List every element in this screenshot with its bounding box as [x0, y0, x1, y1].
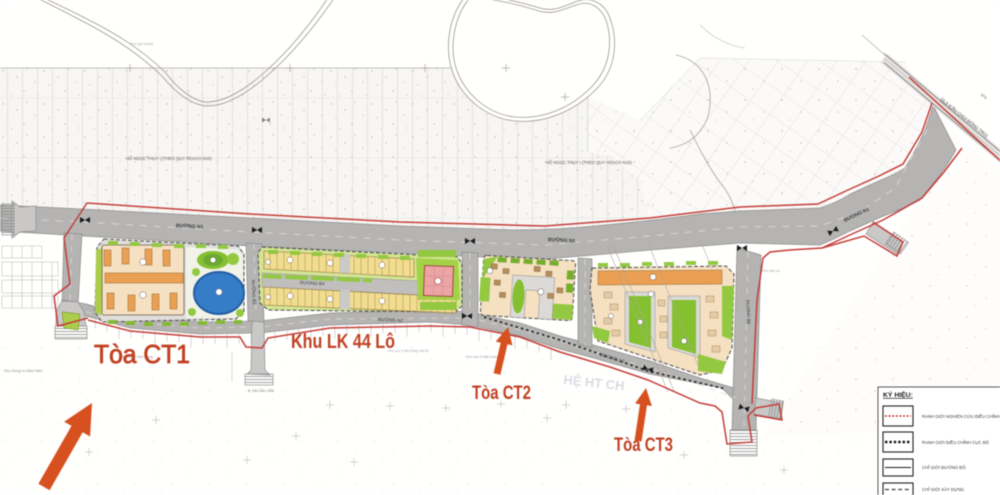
svg-text:Khu vực ở hiện trạng: Khu vực ở hiện trạng	[466, 355, 499, 359]
svg-text:HỒ NGỌC THỤY I (THEO QUY HOẠCH: HỒ NGỌC THỤY I (THEO QUY HOẠCH N10)	[546, 160, 632, 165]
svg-text:CHỈ GIỚI ĐƯỜNG ĐỎ: CHỈ GIỚI ĐƯỜNG ĐỎ	[922, 465, 966, 470]
svg-text:Tòa CT2: Tòa CT2	[472, 383, 531, 404]
svg-text:RANH GIỚI NGHIÊN CỨU ĐIỀU CHỈN: RANH GIỚI NGHIÊN CỨU ĐIỀU CHỈNH CỤC	[922, 414, 1000, 419]
svg-text:CHỈ GIỚI XÂY DỰNG: CHỈ GIỚI XÂY DỰNG	[922, 487, 965, 492]
svg-text:Khu dân cư: Khu dân cư	[762, 269, 781, 273]
svg-text:KÝ HIỆU:: KÝ HIỆU:	[883, 390, 913, 399]
svg-text:Khu LK 44 Lô: Khu LK 44 Lô	[291, 331, 395, 353]
svg-text:ĐƯỜNG B3: ĐƯỜNG B3	[251, 280, 258, 305]
svg-text:ĐƯỜNG N2: ĐƯỜNG N2	[378, 316, 403, 323]
svg-text:Khu chung cư Đầm Nấm: Khu chung cư Đầm Nấm	[4, 369, 43, 373]
svg-text:HỒ NGỌC THỤY I (THEO QUY HOẠCH: HỒ NGỌC THỤY I (THEO QUY HOẠCH N10)	[126, 156, 212, 161]
svg-text:Khu quy hoạch: Khu quy hoạch	[130, 42, 153, 46]
svg-text:Tòa CT3: Tòa CT3	[614, 435, 673, 456]
svg-text:RANH GIỚI ĐIỀU CHỈNH CỤC BỘ: RANH GIỚI ĐIỀU CHỈNH CỤC BỘ	[922, 440, 990, 445]
svg-text:Tòa CT1: Tòa CT1	[94, 339, 190, 369]
svg-text:B. DA CẦU LIỄN: B. DA CẦU LIỄN	[248, 388, 275, 393]
